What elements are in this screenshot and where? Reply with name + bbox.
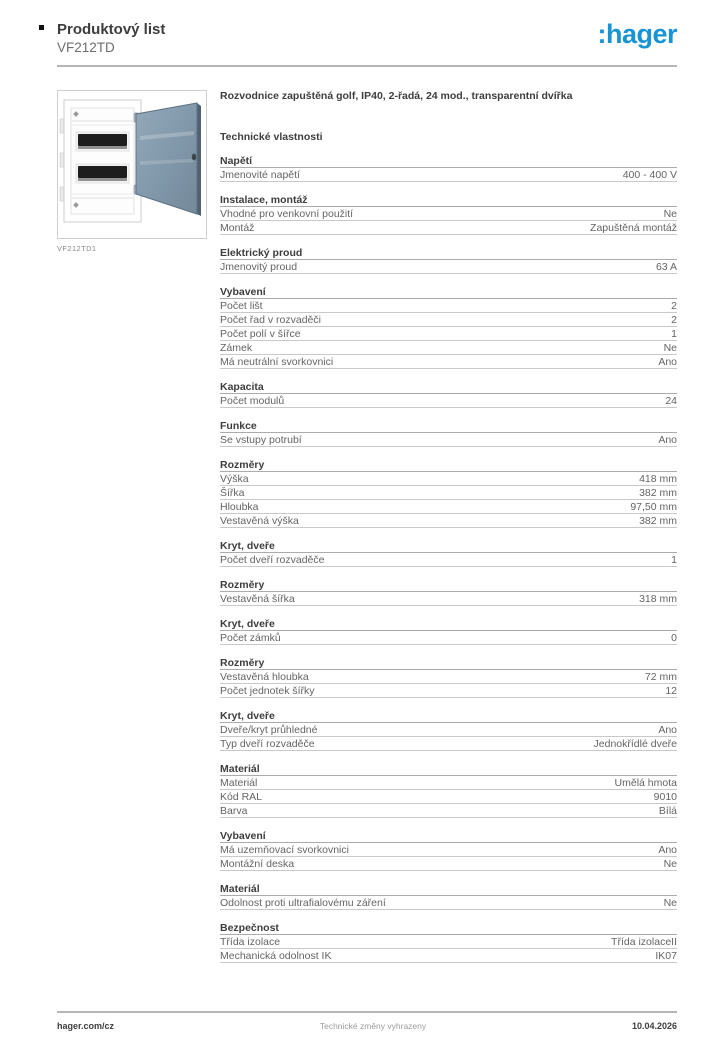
- spec-value: 2: [661, 301, 677, 311]
- spec-label: Počet dveří rozvaděče: [220, 555, 324, 565]
- spec-value: Ano: [648, 845, 677, 855]
- product-image-frame: [57, 90, 207, 239]
- spec-section: RozměryVestavěná hloubka72 mmPočet jedno…: [220, 658, 677, 698]
- hager-logo: :hager: [597, 21, 677, 47]
- spec-value: 400 - 400 V: [613, 170, 677, 180]
- spec-label: Počet modulů: [220, 396, 284, 406]
- spec-row: Šířka382 mm: [220, 486, 677, 500]
- spec-section-title: Kryt, dveře: [220, 541, 677, 553]
- product-description: Rozvodnice zapuštěná golf, IP40, 2-řadá,…: [220, 90, 677, 102]
- main-content: VF212TD1 Rozvodnice zapuštěná golf, IP40…: [57, 90, 677, 963]
- spec-row: ZámekNe: [220, 341, 677, 355]
- doc-type-title: Produktový list: [57, 20, 165, 39]
- spec-value: Ne: [654, 343, 677, 353]
- spec-row: Hloubka97,50 mm: [220, 500, 677, 514]
- spec-label: Odolnost proti ultrafialovému záření: [220, 898, 386, 908]
- spec-value: Ne: [654, 859, 677, 869]
- spec-value: Ne: [654, 898, 677, 908]
- spec-value: Ano: [648, 435, 677, 445]
- spec-section: Kryt, dveřePočet zámků0: [220, 619, 677, 645]
- spec-label: Má uzemňovací svorkovnici: [220, 845, 349, 855]
- spec-value: 382 mm: [629, 516, 677, 526]
- spec-row: Typ dveří rozvaděčeJednokřídlé dveře: [220, 737, 677, 751]
- tech-properties-heading: Technické vlastnosti: [220, 131, 677, 143]
- spec-section-title: Elektrický proud: [220, 248, 677, 260]
- spec-section-title: Bezpečnost: [220, 923, 677, 935]
- spec-section-title: Kryt, dveře: [220, 711, 677, 723]
- spec-section: VybaveníPočet lišt2Počet řad v rozvaděči…: [220, 287, 677, 369]
- product-code: VF212TD: [57, 39, 165, 56]
- spec-value: Bílá: [649, 806, 677, 816]
- spec-label: Materiál: [220, 778, 257, 788]
- spec-label: Třída izolace: [220, 937, 280, 947]
- spec-section-title: Rozměry: [220, 460, 677, 472]
- spec-section: Kryt, dveřeDveře/kryt průhlednéAnoTyp dv…: [220, 711, 677, 751]
- spec-section-title: Materiál: [220, 884, 677, 896]
- spec-section: VybaveníMá uzemňovací svorkovniciAnoMont…: [220, 831, 677, 871]
- spec-row: Počet lišt2: [220, 299, 677, 313]
- spec-section-title: Vybavení: [220, 831, 677, 843]
- spec-section: NapětíJmenovité napětí400 - 400 V: [220, 156, 677, 182]
- spec-value: 1: [661, 555, 677, 565]
- spec-label: Hloubka: [220, 502, 259, 512]
- spec-label: Vestavěná šířka: [220, 594, 295, 604]
- spec-label: Počet jednotek šířky: [220, 686, 315, 696]
- spec-label: Jmenovitý proud: [220, 262, 297, 272]
- footer-date: 10.04.2026: [632, 1021, 677, 1031]
- spec-row: Počet jednotek šířky12: [220, 684, 677, 698]
- spec-value: Zapuštěná montáž: [580, 223, 677, 233]
- header-titles: Produktový list VF212TD: [57, 20, 165, 56]
- spec-value: 12: [655, 686, 677, 696]
- spec-row: Počet řad v rozvaděči2: [220, 313, 677, 327]
- spec-value: 9010: [644, 792, 677, 802]
- spec-section: RozměryVestavěná šířka318 mm: [220, 580, 677, 606]
- spec-row: Vestavěná hloubka72 mm: [220, 670, 677, 684]
- spec-section-title: Kapacita: [220, 382, 677, 394]
- spec-row: Vestavěná výška382 mm: [220, 514, 677, 528]
- spec-section: Kryt, dveřePočet dveří rozvaděče1: [220, 541, 677, 567]
- spec-row: Počet modulů24: [220, 394, 677, 408]
- spec-value: IK07: [645, 951, 677, 961]
- spec-label: Montážní deska: [220, 859, 294, 869]
- spec-section-title: Funkce: [220, 421, 677, 433]
- spec-value: 63 A: [646, 262, 677, 272]
- spec-section-title: Kryt, dveře: [220, 619, 677, 631]
- spec-section: FunkceSe vstupy potrubíAno: [220, 421, 677, 447]
- spec-value: Ne: [654, 209, 677, 219]
- spec-label: Počet polí v šířce: [220, 329, 301, 339]
- spec-row: MontážZapuštěná montáž: [220, 221, 677, 235]
- spec-row: Výška418 mm: [220, 472, 677, 486]
- spec-value: Jednokřídlé dveře: [584, 739, 677, 749]
- spec-row: BarvaBílá: [220, 804, 677, 818]
- spec-row: Počet polí v šířce1: [220, 327, 677, 341]
- spec-value: 2: [661, 315, 677, 325]
- spec-value: 0: [661, 633, 677, 643]
- spec-section-title: Rozměry: [220, 580, 677, 592]
- spec-row: Mechanická odolnost IKIK07: [220, 949, 677, 963]
- spec-label: Šířka: [220, 488, 245, 498]
- footer-disclaimer: Technické změny vyhrazeny: [320, 1021, 426, 1031]
- spec-label: Má neutrální svorkovnici: [220, 357, 333, 367]
- spec-row: Vestavěná šířka318 mm: [220, 592, 677, 606]
- spec-row: Jmenovitý proud63 A: [220, 260, 677, 274]
- spec-row: Dveře/kryt průhlednéAno: [220, 723, 677, 737]
- footer-website: hager.com/cz: [57, 1021, 114, 1031]
- spec-value: 97,50 mm: [620, 502, 677, 512]
- spec-value: 382 mm: [629, 488, 677, 498]
- spec-label: Zámek: [220, 343, 252, 353]
- spec-value: Ano: [648, 725, 677, 735]
- footer-row: hager.com/cz Technické změny vyhrazeny 1…: [57, 1021, 677, 1031]
- spec-section: Instalace, montážVhodné pro venkovní pou…: [220, 195, 677, 235]
- spec-row: Se vstupy potrubíAno: [220, 433, 677, 447]
- spec-row: Počet dveří rozvaděče1: [220, 553, 677, 567]
- spec-label: Barva: [220, 806, 247, 816]
- spec-label: Mechanická odolnost IK: [220, 951, 331, 961]
- spec-value: 24: [655, 396, 677, 406]
- spec-section-title: Materiál: [220, 764, 677, 776]
- spec-value: Ano: [648, 357, 677, 367]
- spec-row: Má neutrální svorkovniciAno: [220, 355, 677, 369]
- spec-section-title: Rozměry: [220, 658, 677, 670]
- spec-label: Vestavěná výška: [220, 516, 299, 526]
- page-header: Produktový list VF212TD :hager: [57, 20, 677, 56]
- header-divider: [57, 65, 677, 67]
- spec-row: Třída izolaceTřída izolaceII: [220, 935, 677, 949]
- spec-row: Vhodné pro venkovní použitíNe: [220, 207, 677, 221]
- spec-section: RozměryVýška418 mmŠířka382 mmHloubka97,5…: [220, 460, 677, 528]
- spec-section: MateriálOdolnost proti ultrafialovému zá…: [220, 884, 677, 910]
- spec-value: Třída izolaceII: [601, 937, 677, 947]
- specs-column: Rozvodnice zapuštěná golf, IP40, 2-řadá,…: [220, 90, 677, 963]
- footer-divider: [57, 1011, 677, 1013]
- spec-value: 418 mm: [629, 474, 677, 484]
- spec-label: Jmenovité napětí: [220, 170, 300, 180]
- spec-section: KapacitaPočet modulů24: [220, 382, 677, 408]
- spec-section: BezpečnostTřída izolaceTřída izolaceIIMe…: [220, 923, 677, 963]
- spec-label: Se vstupy potrubí: [220, 435, 302, 445]
- figure-caption: VF212TD1: [57, 244, 207, 253]
- spec-sections: NapětíJmenovité napětí400 - 400 VInstala…: [220, 156, 677, 963]
- product-image: [58, 91, 206, 238]
- spec-value: Umělá hmota: [605, 778, 677, 788]
- spec-label: Počet řad v rozvaděči: [220, 315, 321, 325]
- spec-label: Kód RAL: [220, 792, 262, 802]
- spec-row: Má uzemňovací svorkovniciAno: [220, 843, 677, 857]
- spec-label: Typ dveří rozvaděče: [220, 739, 315, 749]
- spec-section-title: Vybavení: [220, 287, 677, 299]
- spec-row: Montážní deskaNe: [220, 857, 677, 871]
- spec-label: Montáž: [220, 223, 254, 233]
- page-footer: hager.com/cz Technické změny vyhrazeny 1…: [57, 1011, 677, 1031]
- spec-label: Vestavěná hloubka: [220, 672, 309, 682]
- spec-label: Výška: [220, 474, 249, 484]
- spec-row: Kód RAL9010: [220, 790, 677, 804]
- spec-value: 72 mm: [635, 672, 677, 682]
- spec-section: Elektrický proudJmenovitý proud63 A: [220, 248, 677, 274]
- spec-value: 318 mm: [629, 594, 677, 604]
- spec-row: Počet zámků0: [220, 631, 677, 645]
- spec-label: Dveře/kryt průhledné: [220, 725, 317, 735]
- spec-value: 1: [661, 329, 677, 339]
- spec-row: Odolnost proti ultrafialovému zářeníNe: [220, 896, 677, 910]
- spec-row: MateriálUmělá hmota: [220, 776, 677, 790]
- spec-label: Vhodné pro venkovní použití: [220, 209, 353, 219]
- spec-label: Počet lišt: [220, 301, 263, 311]
- spec-section-title: Napětí: [220, 156, 677, 168]
- product-figure: VF212TD1: [57, 90, 207, 253]
- spec-section-title: Instalace, montáž: [220, 195, 677, 207]
- spec-row: Jmenovité napětí400 - 400 V: [220, 168, 677, 182]
- spec-label: Počet zámků: [220, 633, 281, 643]
- spec-section: MateriálMateriálUmělá hmotaKód RAL9010Ba…: [220, 764, 677, 818]
- crop-mark: [39, 25, 44, 30]
